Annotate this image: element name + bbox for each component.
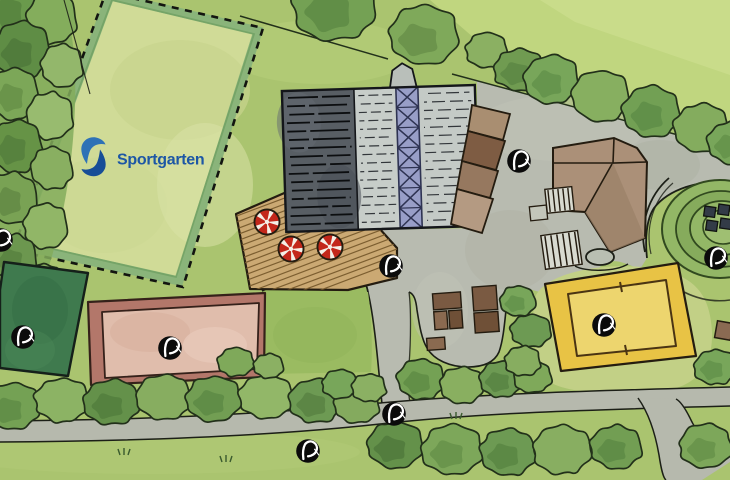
svg-text:Sportgarten: Sportgarten: [117, 152, 204, 169]
